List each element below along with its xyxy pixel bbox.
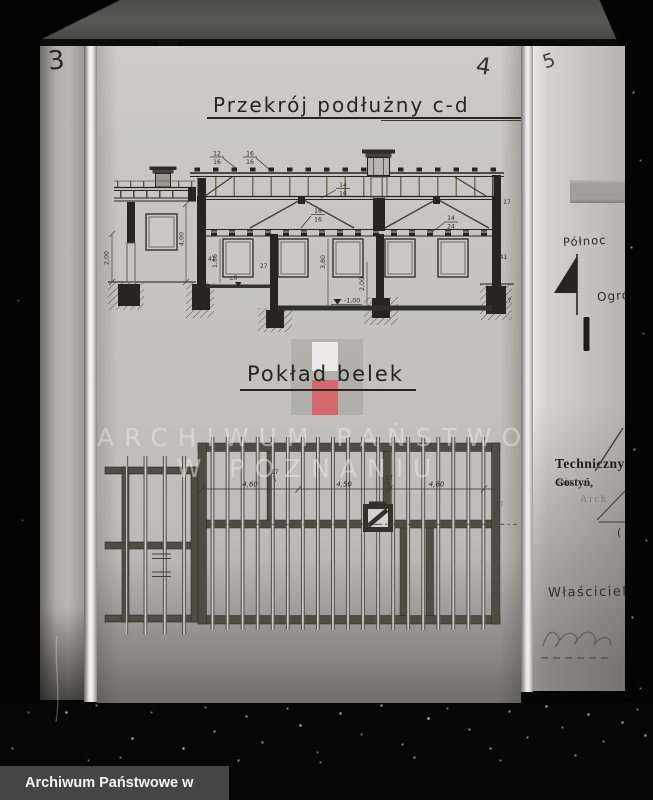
film-border-right <box>625 0 653 800</box>
plan-title-underline <box>240 389 416 391</box>
watermark-line-2: W POZNANIU <box>97 454 521 483</box>
archival-scan: 3 4 Przekrój podłużny c-d Pokład belek <box>0 0 653 800</box>
pen-strokes <box>595 428 625 522</box>
page-number-4: 4 <box>474 53 492 81</box>
svg-text:17: 17 <box>503 199 511 206</box>
svg-text:16: 16 <box>339 191 347 198</box>
page-top-edge <box>30 39 653 46</box>
svg-text:16: 16 <box>314 217 322 224</box>
level-markers: ±0 -1,00 <box>229 275 361 305</box>
page-edge-highlight <box>84 46 97 702</box>
svg-text:16: 16 <box>213 159 221 166</box>
cross-section-drawing: ±0 -1,00 12 16 16 16 14 16 <box>100 142 520 337</box>
right-page-marks: ( <box>533 46 625 691</box>
svg-text:16: 16 <box>246 151 254 158</box>
title-underline <box>207 117 521 119</box>
plan-title: Pokład belek <box>247 362 404 386</box>
windows <box>146 214 468 277</box>
svg-text:27: 27 <box>260 264 268 270</box>
paren-mark: ( <box>617 526 621 539</box>
signature <box>541 632 613 658</box>
svg-text:1,86: 1,86 <box>212 254 219 268</box>
dim-fraction-beam: 16 16 <box>301 208 325 228</box>
watermark-line-1: ARCHIWUM PAŃSTWOWE <box>97 423 521 452</box>
plan-chimney <box>363 502 393 533</box>
dust-specks <box>0 0 1 1</box>
north-arrow <box>554 254 590 351</box>
svg-text:16: 16 <box>246 159 254 166</box>
film-scratch <box>0 0 80 740</box>
svg-text:24: 24 <box>447 224 455 231</box>
drawing-sheet: 4 Przekrój podłużny c-d Pokład belek <box>97 46 521 703</box>
dim-fraction-rafter1: 12 16 <box>210 151 237 170</box>
scan-top-band <box>30 0 653 39</box>
archive-footer-bar: Archiwum Państwowe w Poznaniu <box>0 766 229 800</box>
ceiling-beams <box>197 230 501 237</box>
roof-truss <box>190 168 504 229</box>
svg-text:14: 14 <box>447 215 455 222</box>
dim-fraction-rafter2: 16 16 <box>243 151 269 170</box>
page-edge-highlight-2 <box>521 46 533 692</box>
section-title: Przekrój podłużny c-d <box>213 93 470 117</box>
svg-text:16: 16 <box>314 208 322 215</box>
svg-text:2,00: 2,00 <box>104 251 111 265</box>
svg-text:41: 41 <box>500 254 508 261</box>
title-underline-2 <box>381 120 521 121</box>
svg-text:14: 14 <box>339 182 347 189</box>
svg-text:12: 12 <box>213 151 221 158</box>
annex <box>114 167 196 202</box>
svg-text:4,00: 4,00 <box>179 232 186 246</box>
archive-footer-label: Archiwum Państwowe w Poznaniu <box>0 766 229 800</box>
svg-text:3,80: 3,80 <box>320 255 327 269</box>
svg-text:17: 17 <box>504 298 512 305</box>
svg-text:-1,00: -1,00 <box>344 298 360 305</box>
page-right: 5 Północ Ogró Techniczny Gostyń, dnia...… <box>533 46 625 691</box>
svg-text:±0: ±0 <box>229 275 238 282</box>
svg-text:2,00: 2,00 <box>359 277 366 291</box>
